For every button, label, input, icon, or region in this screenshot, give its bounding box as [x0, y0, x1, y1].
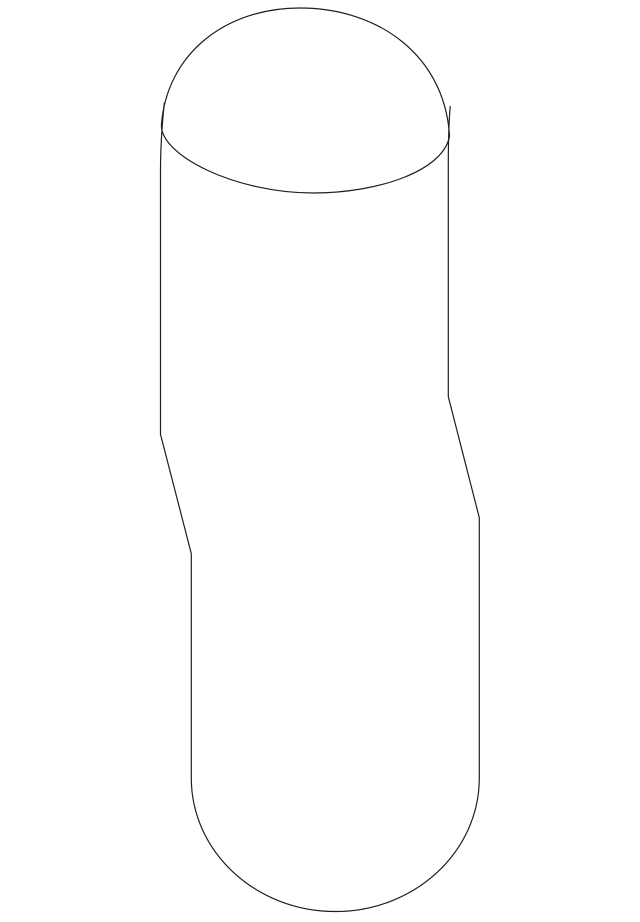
part-top-opening-ellipse: [161, 8, 449, 193]
drawing-canvas: [0, 0, 640, 922]
part-body-outline: [161, 103, 480, 912]
part-outline-drawing: [0, 0, 640, 922]
